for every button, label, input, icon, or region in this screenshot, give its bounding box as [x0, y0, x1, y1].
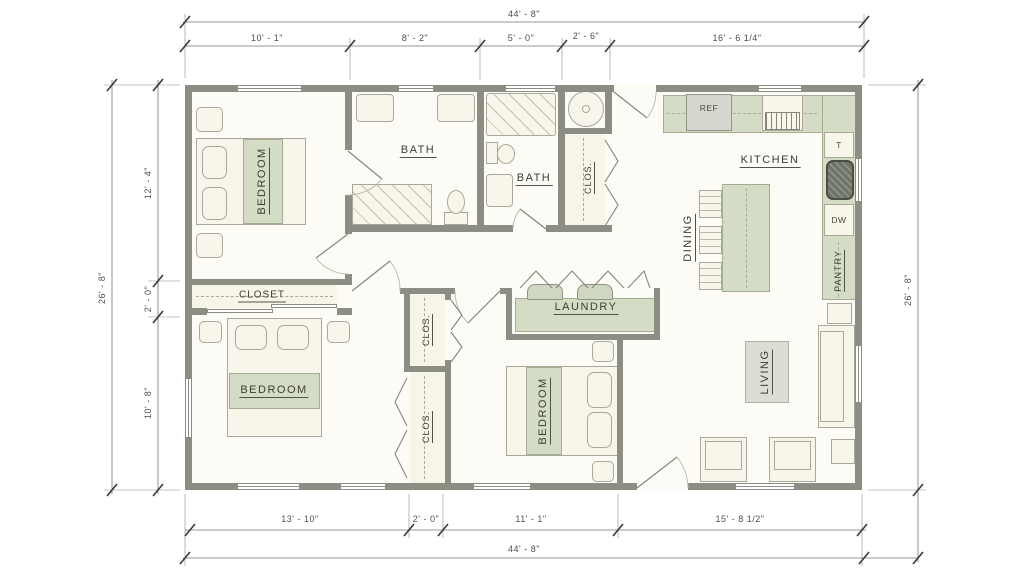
bifold-panel — [628, 271, 650, 288]
door-leaf — [316, 234, 348, 258]
refrigerator-label: REF — [700, 103, 719, 113]
room-label-pantry: PANTRY — [833, 250, 845, 292]
trash-cabinet-label: T — [836, 140, 842, 150]
dimension-ticks — [107, 16, 923, 564]
bifold-panel — [451, 332, 462, 362]
dim-left-seg-2: 2' - 0" — [143, 286, 153, 312]
room-label-closet-master: CLOSET — [238, 290, 286, 303]
room-label-bedroom-top: BEDROOM — [256, 147, 270, 214]
dim-top-seg-5: 16' - 6 1/4" — [713, 33, 762, 43]
dim-bottom-seg-2: 2' - 0" — [413, 514, 439, 524]
door-swings — [316, 92, 688, 488]
room-label-closet-lower: CLOS. — [421, 411, 433, 443]
door-arc — [677, 457, 688, 488]
door-arc — [455, 291, 468, 323]
dimension-lines — [112, 22, 918, 562]
dim-bottom-seg-1: 13' - 10" — [281, 514, 318, 524]
dim-top-seg-3: 5' - 0" — [508, 33, 534, 43]
bifold-panel — [520, 271, 552, 288]
extension-lines — [104, 14, 926, 566]
dim-top-seg-2: 8' - 2" — [402, 33, 428, 43]
door-leaf — [637, 457, 677, 488]
door-leaf — [352, 261, 390, 291]
room-label-laundry: LAUNDRY — [554, 301, 619, 315]
room-label-closet-hall: CLOS. — [583, 162, 595, 194]
door-arc — [348, 179, 382, 195]
room-label-bedroom-third: BEDROOM — [537, 377, 551, 444]
bifold-panel — [605, 140, 618, 182]
room-label-bath-hall: BATH — [516, 172, 553, 186]
dim-top-total: 44' - 8" — [508, 9, 540, 19]
door-leaf — [468, 291, 500, 323]
room-label-kitchen: KITCHEN — [740, 154, 801, 168]
dim-right-total: 26' - 8" — [903, 274, 913, 306]
dim-top-seg-1: 10' - 1" — [251, 33, 283, 43]
door-leaf — [348, 151, 382, 179]
door-leaf — [614, 92, 647, 118]
floor-plan: BEDROOM BATH BATH CLOS. KITCHEN DINING P… — [0, 0, 1024, 576]
door-arc — [647, 92, 656, 118]
room-label-closet-upper: CLOS. — [421, 314, 433, 346]
room-label-living: LIVING — [759, 349, 773, 394]
dim-left-seg-3: 10' - 8" — [143, 387, 153, 419]
dim-left-total: 26' - 8" — [97, 272, 107, 304]
dim-bottom-total: 44' - 8" — [508, 544, 540, 554]
room-label-bedroom-master: BEDROOM — [239, 384, 308, 398]
bifold-panel — [605, 184, 618, 226]
bifold-panel — [556, 271, 588, 288]
room-label-bath-top: BATH — [400, 144, 437, 158]
bifold-panel — [592, 271, 624, 288]
dim-top-seg-4: 2' - 6" — [573, 31, 599, 41]
plan-linework — [0, 0, 1024, 576]
door-leaf — [520, 209, 546, 229]
bifold-panel — [395, 430, 407, 478]
dim-left-seg-1: 12' - 4" — [143, 167, 153, 199]
door-arc — [316, 258, 348, 274]
bifold-panel — [395, 378, 407, 426]
door-arc — [513, 209, 520, 229]
dim-bottom-seg-3: 11' - 1" — [515, 514, 546, 524]
door-arc — [390, 261, 400, 291]
room-label-dining: DINING — [682, 214, 696, 262]
dishwasher-label: DW — [831, 215, 846, 225]
dim-bottom-seg-4: 15' - 8 1/2" — [716, 514, 765, 524]
